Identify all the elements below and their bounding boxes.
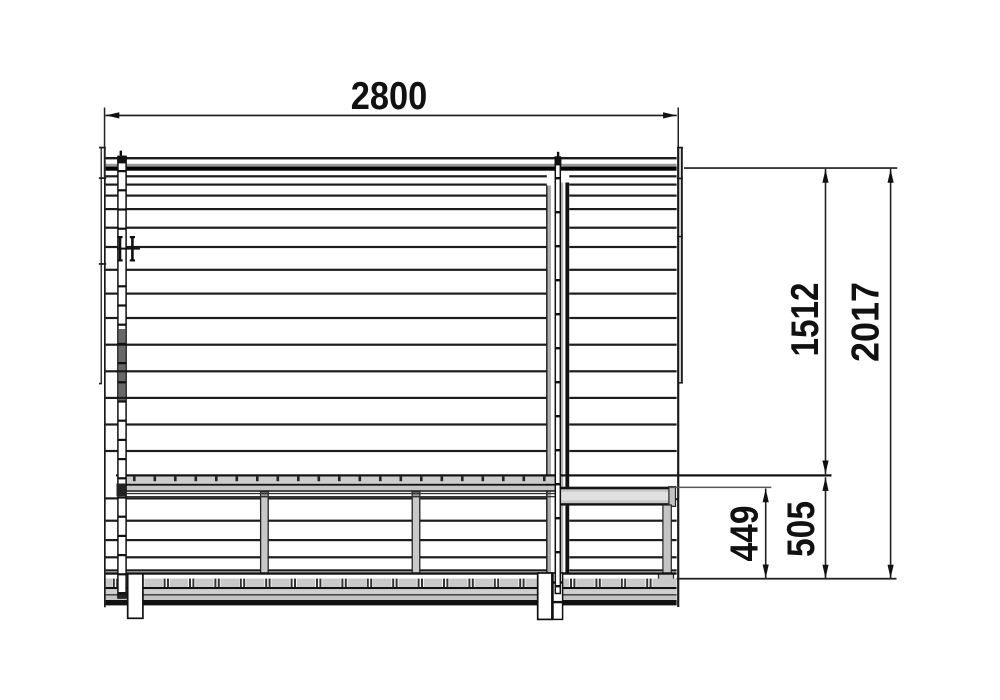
- svg-text:1512: 1512: [784, 283, 827, 357]
- svg-text:2017: 2017: [845, 282, 888, 362]
- svg-text:449: 449: [724, 506, 767, 562]
- svg-text:2800: 2800: [351, 75, 428, 118]
- svg-text:505: 505: [780, 501, 823, 557]
